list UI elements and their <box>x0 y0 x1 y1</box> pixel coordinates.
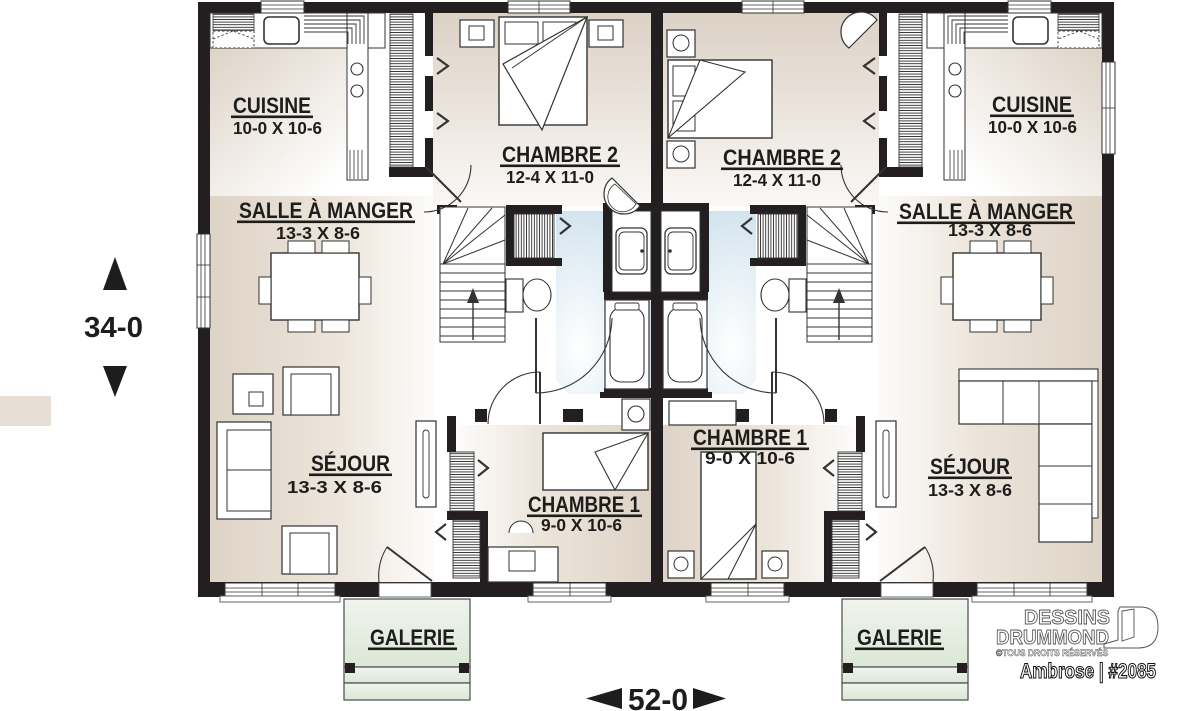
svg-text:SÉJOUR: SÉJOUR <box>930 454 1010 479</box>
svg-text:CHAMBRE 1: CHAMBRE 1 <box>693 425 807 450</box>
svg-text:52-0: 52-0 <box>628 682 688 711</box>
svg-text:DESSINS: DESSINS <box>1024 607 1110 629</box>
svg-text:13-3 X 8-6: 13-3 X 8-6 <box>928 480 1012 500</box>
svg-text:13-3 X 8-6: 13-3 X 8-6 <box>276 223 360 243</box>
svg-text:©TOUS DROITS RÉSERVÉS: ©TOUS DROITS RÉSERVÉS <box>996 648 1108 658</box>
svg-text:10-0 X 10-6: 10-0 X 10-6 <box>988 117 1077 137</box>
svg-text:DRUMMOND: DRUMMOND <box>996 627 1109 649</box>
svg-text:9-0 X 10-6: 9-0 X 10-6 <box>705 448 795 468</box>
svg-text:12-4 X 11-0: 12-4 X 11-0 <box>506 167 594 187</box>
svg-text:12-4 X 11-0: 12-4 X 11-0 <box>733 170 821 190</box>
svg-text:GALERIE: GALERIE <box>857 625 942 650</box>
svg-text:CHAMBRE 1: CHAMBRE 1 <box>528 492 640 517</box>
svg-text:CHAMBRE 2: CHAMBRE 2 <box>723 145 841 170</box>
svg-text:13-3 X 8-6: 13-3 X 8-6 <box>948 220 1032 240</box>
svg-text:SÉJOUR: SÉJOUR <box>311 451 390 476</box>
svg-text:CUISINE: CUISINE <box>233 93 311 118</box>
svg-text:Ambrose | #2085: Ambrose | #2085 <box>1020 660 1156 683</box>
svg-text:9-0 X 10-6: 9-0 X 10-6 <box>541 515 622 535</box>
svg-text:34-0: 34-0 <box>84 312 143 344</box>
svg-text:CUISINE: CUISINE <box>992 92 1072 117</box>
svg-text:13-3 X 8-6: 13-3 X 8-6 <box>287 477 382 497</box>
svg-text:10-0 X 10-6: 10-0 X 10-6 <box>233 118 322 138</box>
svg-text:CHAMBRE 2: CHAMBRE 2 <box>502 142 618 167</box>
svg-text:GALERIE: GALERIE <box>370 625 455 650</box>
svg-text:SALLE À MANGER: SALLE À MANGER <box>239 198 413 223</box>
